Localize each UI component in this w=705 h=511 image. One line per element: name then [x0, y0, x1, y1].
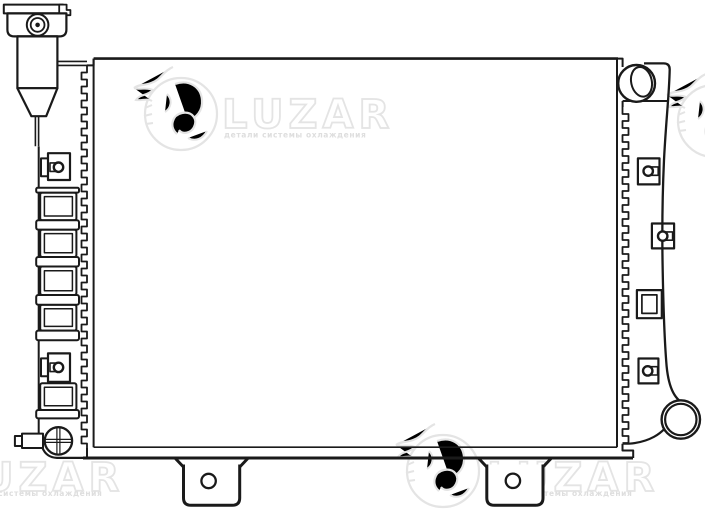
core-top-left-step: [87, 59, 94, 66]
mounting-tab-right-lower: [639, 359, 659, 384]
rib-band: [36, 188, 79, 193]
watermark-tagline: детали системы охлаждения: [224, 131, 366, 140]
radiator-drawing-canvas: LUZAR детали системы охлаждения LUZAR де…: [0, 0, 705, 511]
tank-rib-stack: [36, 188, 79, 419]
keyhole-hole: [658, 231, 667, 240]
vent-notch: [637, 290, 662, 318]
outlet-pipe-bottom: [662, 400, 700, 438]
right-serration: [623, 107, 629, 443]
dragon-logo-icon: [667, 74, 705, 157]
drain-plug: [15, 427, 84, 458]
right-tank: [618, 63, 700, 443]
rib-band: [36, 257, 79, 267]
rib-band: [36, 331, 79, 341]
watermark-bottom-left-partial: LUZAR детали системы охлаждения: [0, 455, 124, 501]
drain-stub: [22, 434, 43, 448]
mounting-tab-right-upper: [638, 158, 660, 184]
watermark-top: LUZAR детали системы охлаждения: [134, 67, 394, 150]
cap-badge-circles: [27, 14, 49, 36]
left-tank-top-seam: [57, 61, 87, 65]
neck-body: [17, 36, 57, 88]
inlet-pipe-top: [618, 65, 655, 102]
neck-funnel: [17, 88, 57, 116]
drain-plug-head: [45, 427, 72, 454]
dragon-logo-icon: [396, 424, 479, 507]
keyhole-hole: [54, 363, 63, 372]
filler-neck: [4, 5, 71, 147]
radiator-drawing: LUZAR детали системы охлаждения LUZAR де…: [0, 0, 705, 511]
watermark-top-right-partial: [667, 74, 705, 157]
watermark-tagline: детали системы охлаждения: [0, 489, 102, 498]
filler-cap-bar: [4, 5, 63, 14]
bracket-body: [184, 465, 240, 506]
overflow-tube: [35, 116, 38, 146]
keyhole-hole: [644, 166, 653, 175]
drain-stub-tip: [15, 436, 22, 446]
bottom-bracket-left: [175, 458, 249, 506]
keyhole-hole: [54, 163, 63, 172]
outlet-pipe-bore: [665, 404, 696, 435]
rib-band: [36, 220, 79, 229]
rib-band: [36, 410, 79, 418]
cap-center-dot: [35, 23, 40, 28]
bottom-bracket-right: [478, 458, 552, 506]
bracket-body: [487, 465, 543, 506]
watermark-layer: LUZAR детали системы охлаждения LUZAR де…: [0, 67, 705, 507]
rib-band: [36, 295, 79, 305]
mounting-tab-lower-left: [41, 353, 70, 381]
left-serration: [82, 66, 88, 449]
mounting-tab-upper-left: [41, 153, 70, 180]
left-tank: [15, 61, 87, 458]
bottom-brackets: [175, 458, 553, 506]
dragon-logo-icon: [134, 67, 217, 150]
keyhole-hole: [643, 366, 652, 375]
